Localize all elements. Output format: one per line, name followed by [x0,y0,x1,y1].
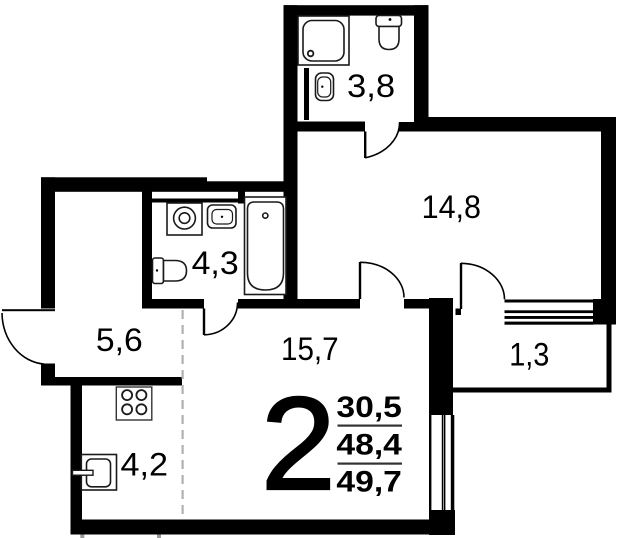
svg-text:14,8: 14,8 [422,188,481,225]
svg-text:3,8: 3,8 [347,67,395,104]
svg-text:2: 2 [261,370,336,517]
svg-text:48,4: 48,4 [336,429,402,462]
svg-text:5,6: 5,6 [96,321,143,358]
svg-text:30,5: 30,5 [336,391,402,424]
svg-text:49,7: 49,7 [336,466,402,499]
svg-text:4,3: 4,3 [192,244,239,281]
svg-text:15,7: 15,7 [281,330,339,367]
svg-text:1,3: 1,3 [509,336,549,373]
svg-text:4,2: 4,2 [121,446,169,483]
